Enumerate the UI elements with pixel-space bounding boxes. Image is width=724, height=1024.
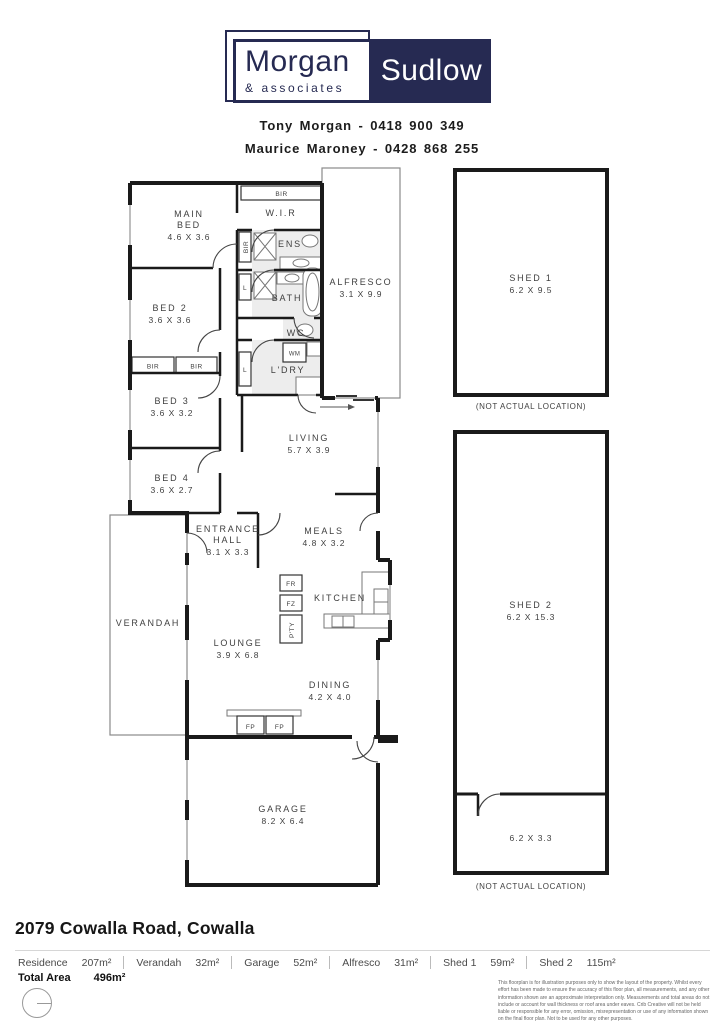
area-label: Alfresco — [342, 957, 380, 969]
room-label-hall-2: HALL — [213, 535, 243, 545]
room-dims-bed3: 3.6 X 3.2 — [150, 408, 193, 418]
room-dims-bed4: 3.6 X 2.7 — [150, 485, 193, 495]
room-label-shed1: SHED 1 — [509, 273, 552, 283]
room-dims-shed2: 6.2 X 15.3 — [507, 612, 556, 622]
room-label-shed2: SHED 2 — [509, 600, 552, 610]
area-separator — [430, 956, 431, 969]
disclaimer-text: This floorplan is for illustration purpo… — [498, 980, 710, 1024]
linen-label-2: L — [243, 367, 247, 374]
floorplan-page: Morgan & associates Sudlow Tony Morgan -… — [0, 0, 724, 1024]
fireplace-label-1: FP — [246, 724, 255, 731]
room-label-verandah: VERANDAH — [116, 618, 180, 628]
area-label: Shed 2 — [539, 957, 572, 969]
area-separator — [329, 956, 330, 969]
room-label-alfresco: ALFRESCO — [330, 277, 393, 287]
room-dims-shed1: 6.2 X 9.5 — [509, 285, 552, 295]
floor-plan-svg: MAIN BED 4.6 X 3.6 W.I.R ENS BED 2 3.6 X… — [0, 0, 724, 1024]
room-label-bed3: BED 3 — [154, 396, 189, 406]
room-dims-bed2: 3.6 X 3.6 — [148, 315, 191, 325]
sheds: SHED 1 6.2 X 9.5 (NOT ACTUAL LOCATION) S… — [455, 170, 607, 891]
total-area-row: Total Area 496m² — [18, 972, 125, 984]
disclaimer-block: This floorplan is for illustration purpo… — [498, 980, 710, 1024]
room-dims-meals: 4.8 X 3.2 — [302, 538, 345, 548]
area-separator — [123, 956, 124, 969]
area-label: Residence — [18, 957, 68, 969]
room-label-ldry: L'DRY — [271, 365, 306, 375]
room-label-main-bed-2: BED — [177, 220, 201, 230]
room-dims-shed2-store: 6.2 X 3.3 — [509, 833, 552, 843]
total-area-label: Total Area — [18, 972, 71, 984]
room-label-wir: W.I.R — [266, 208, 297, 218]
area-value: 207m² — [82, 957, 112, 969]
room-dims-lounge: 3.9 X 6.8 — [216, 650, 259, 660]
room-dims-living: 5.7 X 3.9 — [287, 445, 330, 455]
area-value: 59m² — [490, 957, 514, 969]
bir-vertical-label: BIR — [243, 241, 250, 253]
bir-bed3-label-1: BIR — [147, 364, 159, 371]
shed2-caption: (NOT ACTUAL LOCATION) — [476, 882, 586, 891]
room-label-kitchen: KITCHEN — [314, 593, 366, 603]
room-label-wc: WC — [287, 328, 306, 338]
area-separator — [526, 956, 527, 969]
room-label-bath: BATH — [272, 293, 303, 303]
property-address: 2079 Cowalla Road, Cowalla — [15, 918, 255, 939]
room-label-living: LIVING — [289, 433, 329, 443]
linen-label-1: L — [243, 285, 247, 292]
area-value: 32m² — [195, 957, 219, 969]
room-label-dining: DINING — [309, 680, 351, 690]
room-dims-hall: 3.1 X 3.3 — [206, 547, 249, 557]
footer-divider — [15, 950, 710, 951]
room-label-lounge: LOUNGE — [214, 638, 263, 648]
shed1-caption: (NOT ACTUAL LOCATION) — [476, 402, 586, 411]
bir-bed3-label-2: BIR — [190, 364, 202, 371]
freezer-label: FZ — [287, 601, 296, 608]
area-label: Garage — [244, 957, 279, 969]
room-label-hall: ENTRANCE — [196, 524, 260, 534]
area-value: 115m² — [587, 957, 616, 969]
room-dims-alfresco: 3.1 X 9.9 — [339, 289, 382, 299]
shed2-door-arc — [478, 794, 500, 816]
room-label-ens: ENS — [278, 239, 302, 249]
north-compass-icon — [22, 988, 52, 1018]
room-dims-main-bed: 4.6 X 3.6 — [167, 232, 210, 242]
room-label-garage: GARAGE — [258, 804, 307, 814]
area-value: 31m² — [394, 957, 418, 969]
room-dims-garage: 8.2 X 6.4 — [261, 816, 304, 826]
room-dims-dining: 4.2 X 4.0 — [308, 692, 351, 702]
fireplace-label-2: FP — [275, 724, 284, 731]
area-summary-row: Residence 207m² Verandah 32m² Garage 52m… — [18, 956, 628, 969]
area-value: 52m² — [293, 957, 317, 969]
area-separator — [231, 956, 232, 969]
compass-needle — [37, 1003, 51, 1004]
area-label: Verandah — [136, 957, 181, 969]
room-label-bed4: BED 4 — [154, 473, 189, 483]
room-label-bed2: BED 2 — [152, 303, 187, 313]
fridge-label: FR — [286, 581, 296, 588]
room-label-main-bed: MAIN — [174, 209, 204, 219]
washing-machine-label: WM — [289, 352, 300, 358]
room-label-meals: MEALS — [304, 526, 344, 536]
bir-top-label: BIR — [275, 191, 287, 198]
pantry-label: P'TY — [289, 622, 296, 638]
area-label: Shed 1 — [443, 957, 476, 969]
total-area-value: 496m² — [94, 972, 126, 984]
